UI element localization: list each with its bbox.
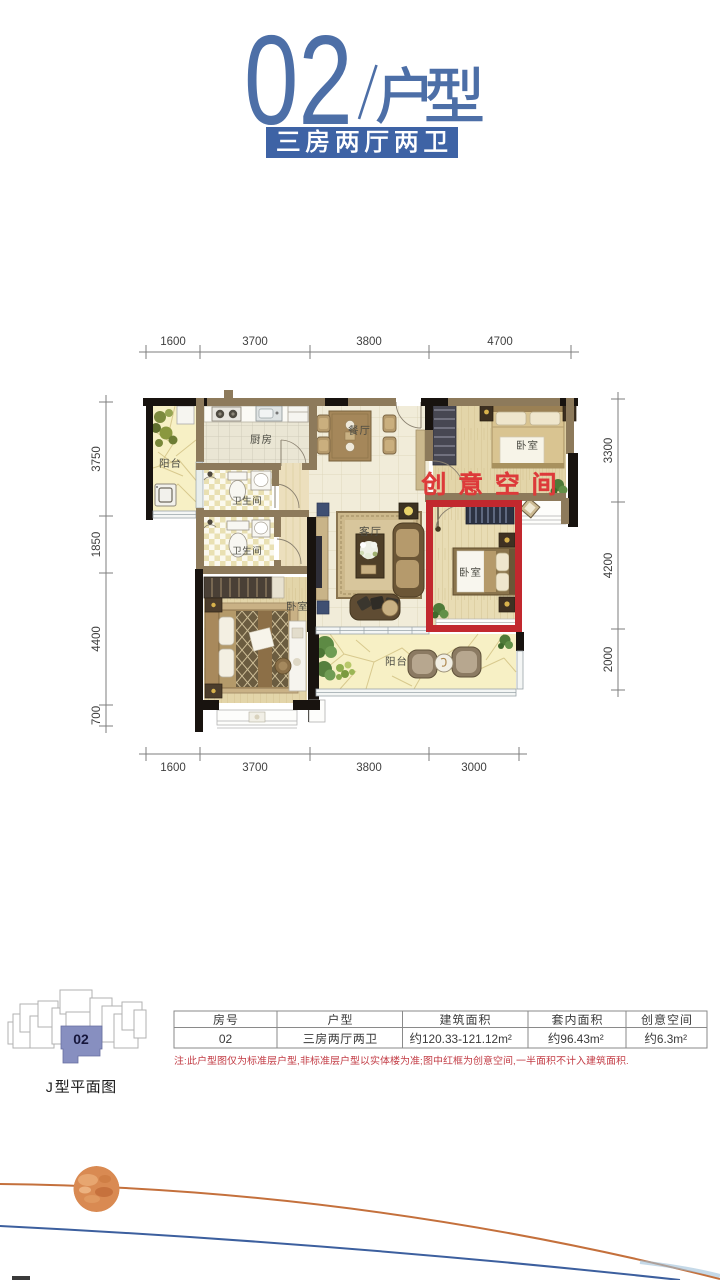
svg-text:3750: 3750: [91, 446, 103, 472]
svg-text:02: 02: [219, 1032, 233, 1046]
svg-text:,: ,: [297, 1055, 300, 1066]
svg-text:3300: 3300: [603, 438, 615, 464]
svg-text:96.43m²: 96.43m²: [560, 1032, 603, 1046]
svg-text:,: ,: [513, 1055, 516, 1066]
svg-text:1600: 1600: [160, 336, 186, 348]
svg-text:120.33-121.12m²: 120.33-121.12m²: [422, 1032, 512, 1046]
svg-text:6.3m²: 6.3m²: [657, 1032, 687, 1046]
svg-text:3800: 3800: [356, 762, 382, 774]
svg-text:.: .: [626, 1055, 629, 1066]
svg-text:700: 700: [91, 706, 103, 725]
svg-text:4400: 4400: [91, 626, 103, 652]
svg-text:1850: 1850: [91, 532, 103, 558]
svg-text:02: 02: [73, 1031, 89, 1047]
svg-text:2000: 2000: [603, 647, 615, 673]
svg-text::: :: [184, 1055, 187, 1066]
svg-text:1600: 1600: [160, 762, 186, 774]
svg-text:3700: 3700: [242, 762, 268, 774]
svg-text:3700: 3700: [242, 336, 268, 348]
svg-text:4700: 4700: [487, 336, 513, 348]
svg-text:3800: 3800: [356, 336, 382, 348]
svg-text:3000: 3000: [461, 762, 487, 774]
svg-text:;: ;: [420, 1055, 423, 1066]
svg-text:J: J: [46, 1079, 53, 1095]
svg-text:4200: 4200: [603, 553, 615, 579]
